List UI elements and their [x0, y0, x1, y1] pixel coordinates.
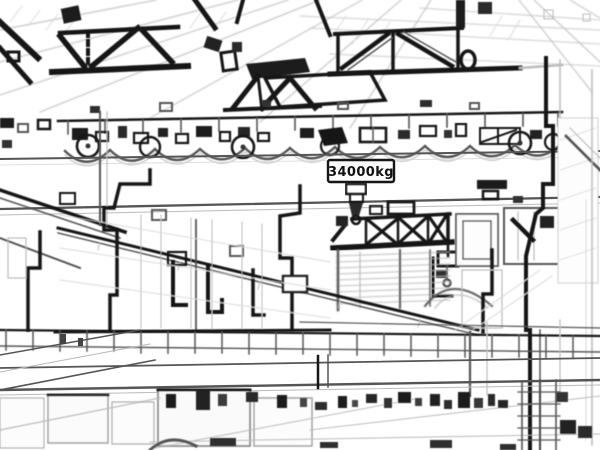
storage-rack	[518, 380, 560, 450]
roof-truss-right	[330, 0, 590, 74]
wall-panels	[456, 208, 562, 266]
runway-beam	[0, 190, 478, 335]
crane-capacity-label: 34000kg	[328, 165, 394, 180]
sketch-canvas: 34000kg	[0, 0, 600, 450]
walkway-beam	[0, 330, 600, 395]
crane-capacity-plate: 34000kg	[328, 160, 394, 182]
roof-truss-left	[0, 0, 215, 82]
left-columns-machinery	[0, 112, 330, 332]
